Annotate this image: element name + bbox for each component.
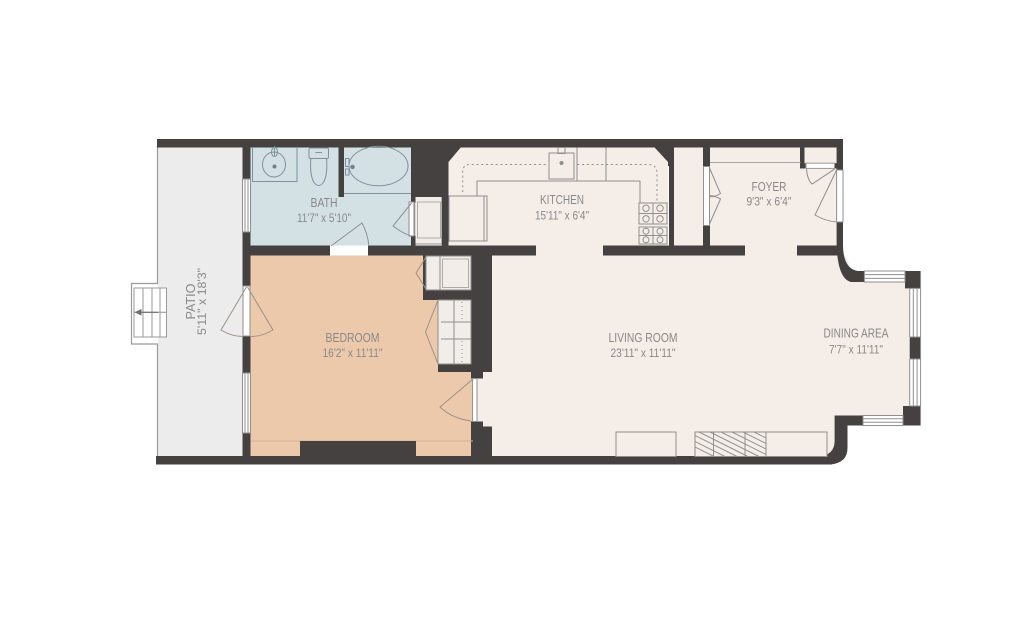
svg-text:15'11" x 6'4": 15'11" x 6'4" xyxy=(535,209,589,223)
svg-text:7'7" x 11'11": 7'7" x 11'11" xyxy=(829,343,883,357)
svg-text:FOYER: FOYER xyxy=(752,179,787,194)
svg-text:9'3" x 6'4": 9'3" x 6'4" xyxy=(747,195,792,209)
svg-text:23'11" x 11'11": 23'11" x 11'11" xyxy=(611,346,676,360)
svg-text:LIVING ROOM: LIVING ROOM xyxy=(609,330,678,345)
svg-text:11'7" x 5'10": 11'7" x 5'10" xyxy=(297,211,351,225)
svg-text:KITCHEN: KITCHEN xyxy=(540,192,584,207)
svg-text:DINING AREA: DINING AREA xyxy=(824,326,889,341)
svg-text:16'2" x 11'11": 16'2" x 11'11" xyxy=(323,346,383,360)
svg-text:5'11" x 18'3": 5'11" x 18'3" xyxy=(195,268,209,335)
svg-text:BEDROOM: BEDROOM xyxy=(326,330,380,345)
svg-text:BATH: BATH xyxy=(311,195,338,210)
